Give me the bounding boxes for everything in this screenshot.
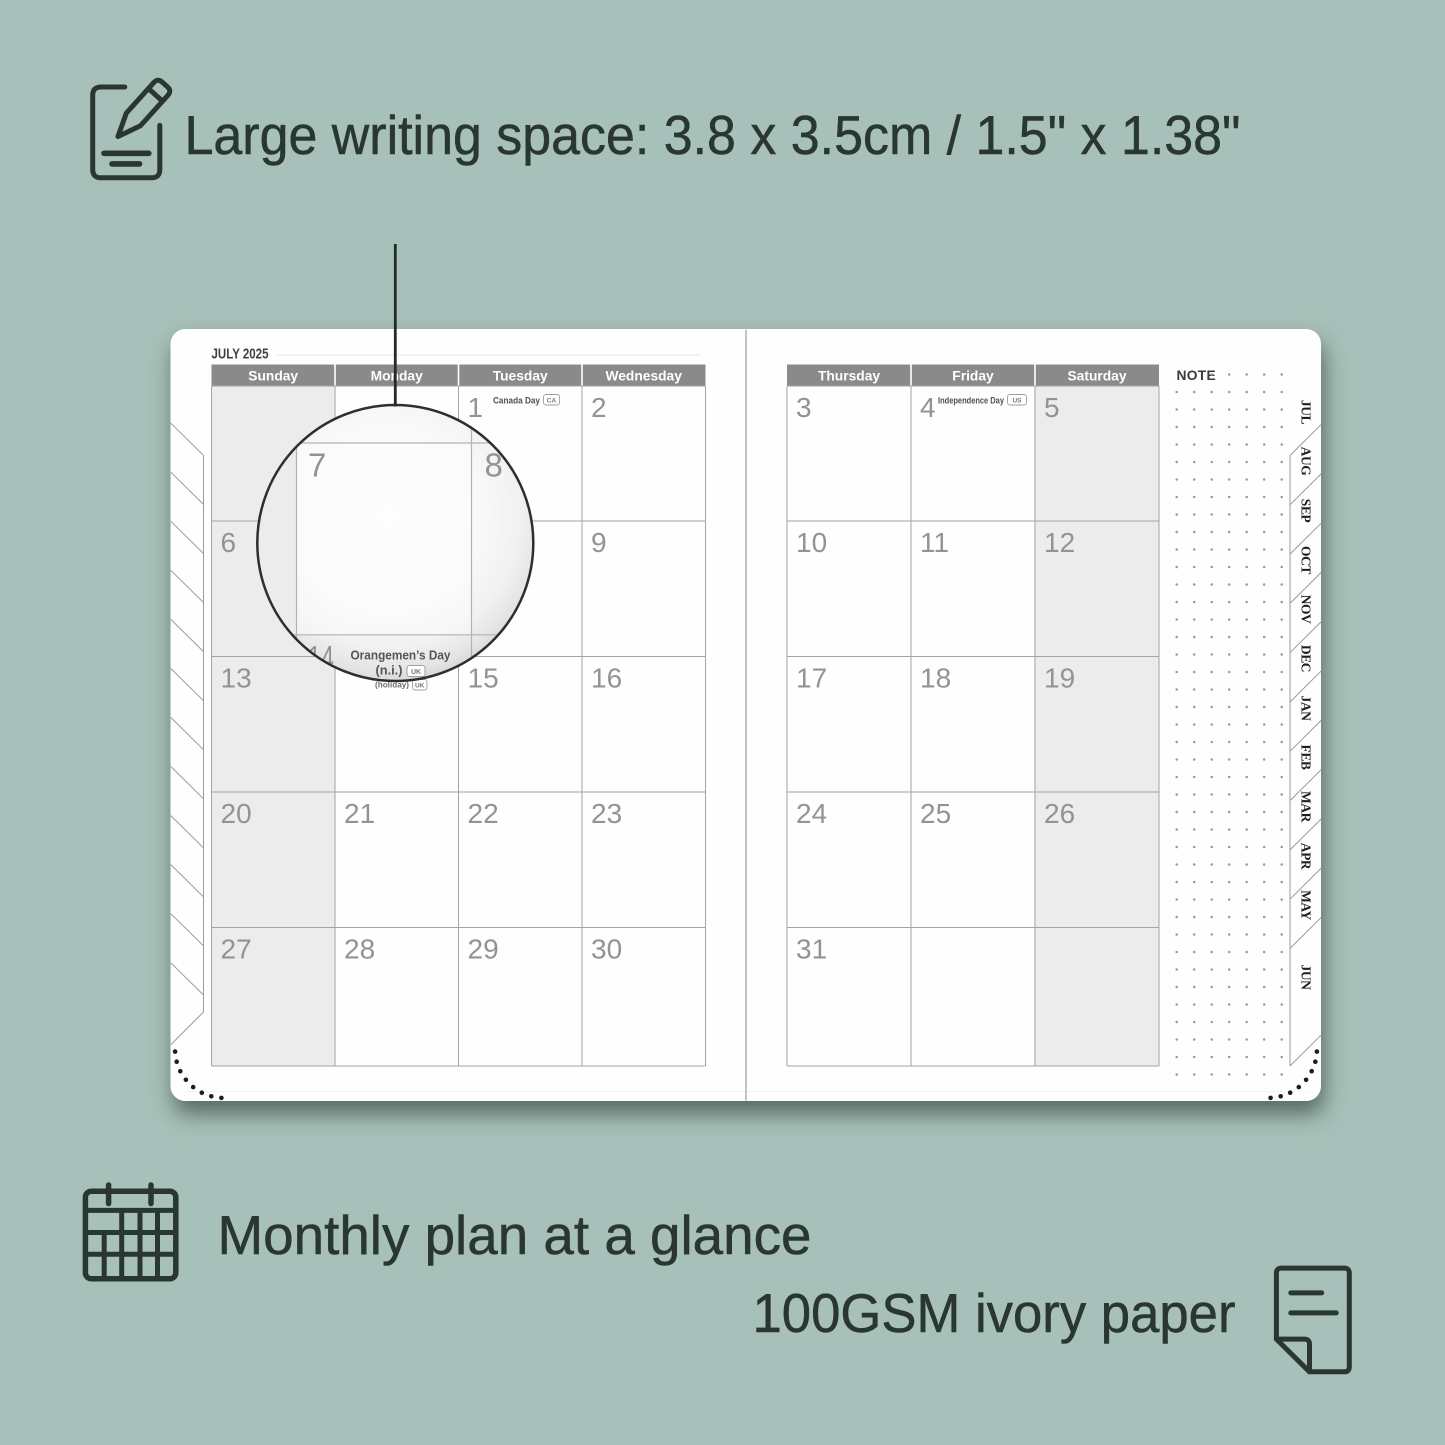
svg-text:NOV: NOV: [1299, 595, 1314, 624]
svg-text:29: 29: [468, 934, 499, 965]
svg-text:26: 26: [1044, 798, 1075, 829]
svg-text:16: 16: [591, 663, 622, 694]
svg-text:6: 6: [221, 527, 237, 558]
svg-text:NOTE: NOTE: [1177, 368, 1217, 383]
svg-text:JAN: JAN: [1299, 695, 1314, 721]
svg-text:12: 12: [1044, 527, 1075, 558]
svg-text:Monthly plan at a glance: Monthly plan at a glance: [218, 1204, 812, 1266]
svg-text:Thursday: Thursday: [818, 369, 880, 384]
svg-text:13: 13: [221, 663, 252, 694]
svg-text:2: 2: [591, 392, 607, 423]
svg-text:15: 15: [468, 663, 499, 694]
svg-text:UK: UK: [415, 682, 425, 689]
svg-text:25: 25: [920, 798, 951, 829]
svg-text:9: 9: [591, 527, 607, 558]
svg-text:Large writing space: 3.8 x 3.5: Large writing space: 3.8 x 3.5cm / 1.5" …: [185, 104, 1241, 166]
svg-text:4: 4: [920, 392, 936, 423]
svg-text:JUL: JUL: [1299, 400, 1314, 425]
svg-text:11: 11: [920, 527, 949, 558]
svg-text:20: 20: [221, 798, 252, 829]
svg-text:OCT: OCT: [1299, 546, 1314, 574]
svg-text:APR: APR: [1299, 843, 1314, 870]
svg-text:CA: CA: [547, 397, 557, 404]
svg-text:Friday: Friday: [952, 369, 994, 384]
svg-text:1: 1: [468, 392, 484, 423]
svg-text:AUG: AUG: [1299, 447, 1314, 477]
svg-text:31: 31: [796, 934, 827, 965]
svg-text:Wednesday: Wednesday: [605, 369, 682, 384]
svg-text:19: 19: [1044, 663, 1075, 694]
svg-text:FEB: FEB: [1299, 744, 1314, 769]
svg-text:MAR: MAR: [1299, 791, 1314, 823]
svg-text:24: 24: [796, 798, 827, 829]
svg-text:DEC: DEC: [1299, 645, 1314, 672]
svg-text:JULY 2025: JULY 2025: [212, 347, 269, 363]
svg-text:JUN: JUN: [1299, 964, 1314, 990]
svg-text:17: 17: [796, 663, 827, 694]
svg-text:23: 23: [591, 798, 622, 829]
svg-text:Sunday: Sunday: [248, 369, 298, 384]
svg-text:Orangemen’s Day: Orangemen’s Day: [351, 648, 452, 663]
svg-text:100GSM ivory paper: 100GSM ivory paper: [753, 1282, 1236, 1344]
svg-text:Tuesday: Tuesday: [493, 369, 548, 384]
svg-text:Canada Day: Canada Day: [493, 396, 541, 407]
svg-text:Independence Day: Independence Day: [938, 396, 1005, 407]
svg-text:Monday: Monday: [371, 369, 423, 384]
svg-text:5: 5: [1044, 392, 1060, 423]
svg-text:22: 22: [468, 798, 499, 829]
svg-text:10: 10: [796, 527, 827, 558]
svg-text:(n.i.): (n.i.): [375, 663, 402, 678]
svg-text:3: 3: [796, 392, 812, 423]
svg-text:SEP: SEP: [1299, 499, 1314, 523]
svg-text:28: 28: [344, 934, 375, 965]
svg-text:7: 7: [308, 447, 326, 484]
svg-text:21: 21: [344, 798, 375, 829]
svg-text:MAY: MAY: [1299, 890, 1314, 920]
svg-text:Saturday: Saturday: [1067, 369, 1126, 384]
svg-text:27: 27: [221, 934, 252, 965]
svg-text:30: 30: [591, 934, 622, 965]
svg-text:US: US: [1012, 397, 1022, 404]
svg-text:18: 18: [920, 663, 951, 694]
svg-text:UK: UK: [411, 669, 421, 676]
